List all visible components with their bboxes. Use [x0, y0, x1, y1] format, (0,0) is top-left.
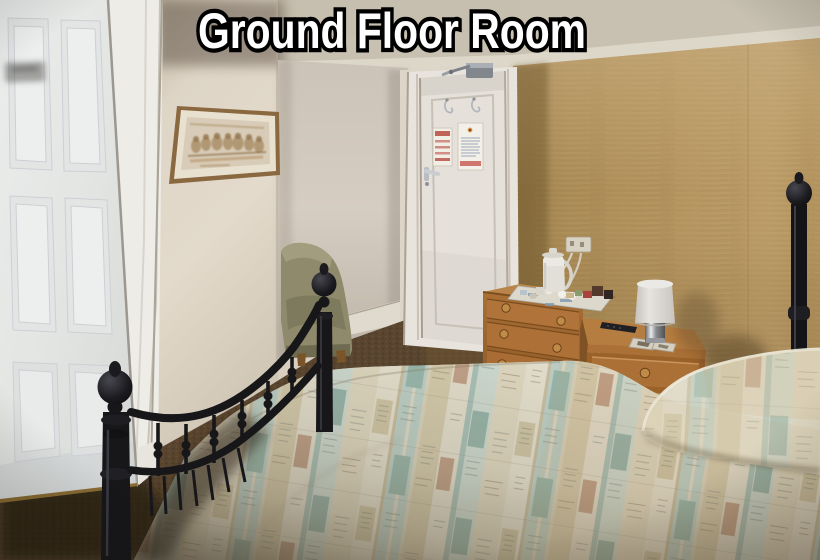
svg-text:Ground Floor Room: Ground Floor Room [198, 3, 586, 59]
